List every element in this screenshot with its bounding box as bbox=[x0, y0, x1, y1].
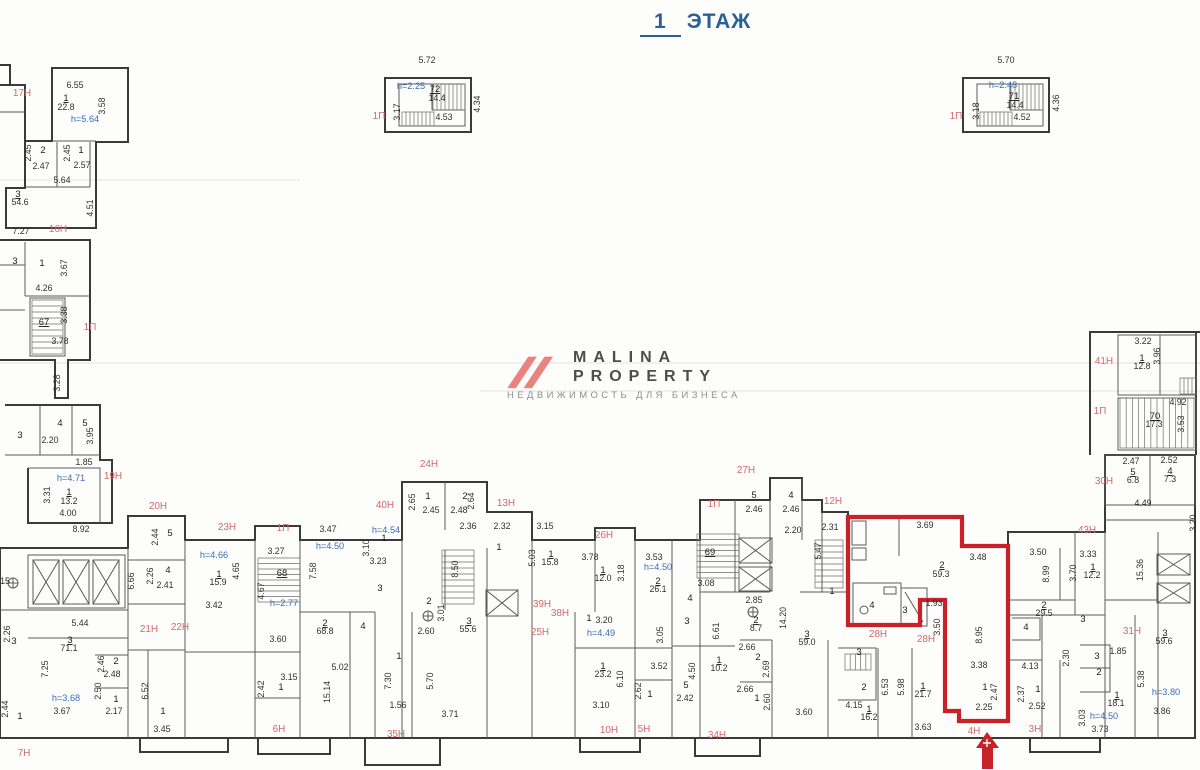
unit-number-label: 41Н bbox=[1095, 356, 1113, 367]
dimension-label: 6.53 bbox=[880, 678, 890, 695]
dimension-label: 8.99 bbox=[1041, 565, 1051, 582]
dimension-label: 2.47 bbox=[989, 683, 999, 700]
dimension-label: 3.50 bbox=[1029, 547, 1046, 557]
dimension-label: 1 bbox=[1035, 683, 1040, 694]
dimension-label: 3 bbox=[11, 635, 16, 646]
height-label: h=3.68 bbox=[52, 693, 80, 703]
unit-number-label: 23Н bbox=[218, 522, 236, 533]
logo-line1: MALINA bbox=[573, 348, 741, 367]
dimension-label: 2.47 bbox=[32, 161, 49, 171]
dimension-label: 3.95 bbox=[85, 427, 95, 444]
dimension-label: 3.10 bbox=[592, 700, 609, 710]
dimension-label: 3.45 bbox=[153, 724, 170, 734]
dimension-label: 4 bbox=[869, 599, 874, 610]
unit-number-label: 16Н bbox=[49, 224, 67, 235]
dimension-label: 21.7 bbox=[914, 689, 931, 699]
dimension-label: 4 bbox=[165, 564, 170, 575]
dimension-label: 22.8 bbox=[57, 102, 74, 112]
dimension-label: 3.47 bbox=[319, 524, 336, 534]
dimension-label: 3.86 bbox=[1153, 706, 1170, 716]
dimension-label: 3.50 bbox=[932, 618, 942, 635]
dimension-label: 2.36 bbox=[459, 521, 476, 531]
brand-logo: MALINA PROPERTY НЕДВИЖИМОСТЬ ДЛЯ БИЗНЕСА bbox=[505, 348, 741, 401]
dimension-label: 2 bbox=[40, 144, 45, 155]
unit-number-label: 25Н bbox=[531, 627, 549, 638]
dimension-label: 69 bbox=[705, 546, 715, 557]
elevator-shaft bbox=[739, 567, 772, 591]
dimension-label: 5.70 bbox=[997, 55, 1014, 65]
dimension-label: 3.73 bbox=[1091, 724, 1108, 734]
elevator-shaft bbox=[1157, 583, 1190, 603]
dimension-label: 8.7 bbox=[750, 623, 762, 633]
dimension-label: 8.50 bbox=[450, 560, 460, 577]
dimension-label: 16.2 bbox=[860, 712, 877, 722]
unit-number-label: 21Н bbox=[140, 624, 158, 635]
dimension-label: 3.71 bbox=[441, 709, 458, 719]
unit-number-label: 7Н bbox=[18, 748, 31, 759]
dimension-label: 2.45 bbox=[23, 144, 33, 161]
dimension-label: 2 bbox=[113, 655, 118, 666]
dimension-label: 2.47 bbox=[1122, 456, 1139, 466]
dimension-label: 4.50 bbox=[687, 662, 697, 679]
floorplan-page: 1ЭТАЖ bbox=[0, 0, 1200, 770]
unit-number-label: 31Н bbox=[1123, 626, 1141, 637]
plan-labels: 5.72h=2.257214.43.174.344.531П5.70h=2.48… bbox=[0, 55, 1198, 759]
dimension-label: 2 bbox=[426, 595, 431, 606]
dimension-label: 4.65 bbox=[231, 562, 241, 579]
dimension-label: 3 bbox=[1080, 613, 1085, 624]
elevator-shaft bbox=[739, 538, 772, 563]
dimension-label: 2.26 bbox=[145, 567, 155, 584]
dimension-label: 5.72 bbox=[418, 55, 435, 65]
dimension-label: 3.70 bbox=[1068, 564, 1078, 581]
dimension-label: 1.85 bbox=[75, 457, 92, 467]
unit-number-label: 34Н bbox=[708, 730, 726, 741]
dimension-label: 4.36 bbox=[1051, 94, 1061, 111]
dimension-label: 2.45 bbox=[422, 505, 439, 515]
dimension-label: 2 bbox=[755, 651, 760, 662]
logo-text: MALINA PROPERTY НЕДВИЖИМОСТЬ ДЛЯ БИЗНЕСА bbox=[573, 348, 741, 401]
dimension-label: 3.96 bbox=[1152, 347, 1162, 364]
dimension-label: 2.45 bbox=[62, 144, 72, 161]
height-label: h=4.49 bbox=[587, 628, 615, 638]
dimension-label: 5 bbox=[751, 489, 756, 500]
dimension-label: 4 bbox=[1023, 621, 1028, 632]
dimension-label: 1 bbox=[381, 532, 386, 543]
dimension-label: 3.05 bbox=[655, 626, 665, 643]
dimension-label: 4.92 bbox=[1169, 397, 1186, 407]
dimension-label: 29.5 bbox=[1035, 608, 1052, 618]
dimension-label: 3.15 bbox=[536, 521, 553, 531]
dimension-label: 15 bbox=[0, 576, 10, 586]
dimension-label: 2.42 bbox=[676, 693, 693, 703]
dimension-label: 2.66 bbox=[738, 642, 755, 652]
dimension-label: 1.56 bbox=[389, 700, 406, 710]
dimension-label: 2.65 bbox=[407, 493, 417, 510]
unit-number-label: 1П bbox=[1094, 406, 1107, 417]
unit-number-label: 3Н bbox=[1029, 724, 1042, 735]
dimension-label: 3.58 bbox=[97, 97, 107, 114]
elevator-shaft bbox=[33, 560, 59, 604]
dimension-label: 2 bbox=[861, 681, 866, 692]
unit-number-label: 39Н bbox=[533, 599, 551, 610]
dimension-label: 3.33 bbox=[1079, 549, 1096, 559]
dimension-label: 3.18 bbox=[971, 102, 981, 119]
stair-flight bbox=[697, 534, 739, 578]
dimension-label: 4 bbox=[788, 489, 793, 500]
dimension-label: 5.03 bbox=[527, 549, 537, 566]
dimension-label: 3.01 bbox=[436, 604, 446, 621]
height-label: h=2.48 bbox=[989, 80, 1017, 90]
dimension-label: 2.52 bbox=[1028, 701, 1045, 711]
dimension-label: 1 bbox=[39, 257, 44, 268]
unit-number-label: 1П bbox=[950, 111, 963, 122]
dimension-label: 2.62 bbox=[633, 682, 643, 699]
dimension-label: 3 bbox=[12, 255, 17, 266]
dimension-label: 3.63 bbox=[914, 722, 931, 732]
height-label: h=3.80 bbox=[1152, 687, 1180, 697]
dimension-label: 2.42 bbox=[256, 680, 266, 697]
dimension-label: 3 bbox=[377, 582, 382, 593]
dimension-label: 1 bbox=[425, 490, 430, 501]
dimension-label: 2.48 bbox=[103, 669, 120, 679]
dimension-label: 2.37 bbox=[1016, 685, 1026, 702]
unit-number-label: 38Н bbox=[551, 608, 569, 619]
dimension-label: 4.15 bbox=[845, 700, 862, 710]
dimension-label: 12.2 bbox=[1083, 570, 1100, 580]
dimension-label: 3.69 bbox=[916, 520, 933, 530]
height-label: h=4.50 bbox=[316, 541, 344, 551]
dimension-label: 5.38 bbox=[1136, 670, 1146, 687]
dimension-label: 23.2 bbox=[594, 669, 611, 679]
unit-number-label: 13Н bbox=[497, 498, 515, 509]
dimension-label: 2.46 bbox=[782, 504, 799, 514]
dimension-label: 1 bbox=[78, 144, 83, 155]
stair-flight bbox=[980, 112, 1012, 126]
dimension-label: 6.10 bbox=[615, 670, 625, 687]
dimension-label: 55.6 bbox=[459, 624, 476, 634]
dimension-label: 5.44 bbox=[71, 618, 88, 628]
dimension-label: 3.20 bbox=[1188, 514, 1198, 531]
unit-number-label: 17Н bbox=[13, 88, 31, 99]
dimension-label: 1 bbox=[160, 705, 165, 716]
dimension-label: 3.60 bbox=[795, 707, 812, 717]
unit-number-label: 27Н bbox=[737, 465, 755, 476]
dimension-label: 5 bbox=[683, 679, 688, 690]
dimension-label: 54.6 bbox=[11, 197, 28, 207]
elevator-shaft bbox=[63, 560, 89, 604]
dimension-label: 68.8 bbox=[316, 626, 333, 636]
dimension-label: 68 bbox=[277, 567, 287, 578]
dimension-label: 4.49 bbox=[1134, 498, 1151, 508]
dimension-label: 4.13 bbox=[1021, 661, 1038, 671]
dimension-label: 8.95 bbox=[974, 626, 984, 643]
dimension-label: 3.20 bbox=[595, 615, 612, 625]
unit-number-label: 35Н bbox=[387, 729, 405, 740]
height-label: h=5.64 bbox=[71, 114, 99, 124]
dimension-label: 3.53 bbox=[1176, 415, 1186, 432]
dimension-label: 1.85 bbox=[1109, 646, 1126, 656]
dimension-label: 2.31 bbox=[821, 522, 838, 532]
unit-number-label: 40Н bbox=[376, 500, 394, 511]
height-label: h=4.50 bbox=[644, 562, 672, 572]
dimension-label: 1 bbox=[647, 688, 652, 699]
dimension-label: 15.36 bbox=[1135, 559, 1145, 581]
dimension-label: 2.25 bbox=[975, 702, 992, 712]
dimension-label: 3.78 bbox=[51, 336, 68, 346]
dimension-label: 6.52 bbox=[140, 682, 150, 699]
unit-number-label: 28Н bbox=[869, 629, 887, 640]
dimension-label: 3.22 bbox=[1134, 336, 1151, 346]
dimension-label: 1 bbox=[496, 541, 501, 552]
dimension-label: 4.53 bbox=[435, 112, 452, 122]
unit-number-label: 1П bbox=[84, 322, 97, 333]
dimension-label: 3.67 bbox=[59, 259, 69, 276]
dimension-label: 13.2 bbox=[60, 496, 77, 506]
dimension-label: 15.9 bbox=[209, 577, 226, 587]
dimension-label: 6.55 bbox=[66, 80, 83, 90]
dimension-label: 2.44 bbox=[0, 700, 10, 717]
height-label: h=4.71 bbox=[57, 473, 85, 483]
dimension-label: 2 bbox=[1096, 666, 1101, 677]
dimension-label: 4.00 bbox=[59, 508, 76, 518]
dimension-label: 1 bbox=[829, 585, 834, 596]
dimension-label: 6.8 bbox=[1127, 475, 1139, 485]
dimension-label: 2.57 bbox=[73, 160, 90, 170]
dimension-label: 3 bbox=[684, 615, 689, 626]
dimension-label: 1 bbox=[396, 650, 401, 661]
dimension-label: 15.8 bbox=[541, 557, 558, 567]
dimension-label: 3.52 bbox=[650, 661, 667, 671]
dimension-label: 2.41 bbox=[156, 580, 173, 590]
unit-number-label: 10Н bbox=[600, 725, 618, 736]
unit-number-label: 22Н bbox=[171, 622, 189, 633]
dimension-label: 1 bbox=[278, 681, 283, 692]
dimension-label: 4.34 bbox=[472, 95, 482, 112]
dimension-label: 14.20 bbox=[778, 607, 788, 629]
dimension-label: 2.32 bbox=[493, 521, 510, 531]
stair-flight bbox=[402, 112, 434, 126]
dimension-label: 59.0 bbox=[798, 637, 815, 647]
dimension-label: 5.47 bbox=[813, 542, 823, 559]
dimension-label: 59.6 bbox=[1155, 636, 1172, 646]
dimension-label: 7.58 bbox=[308, 562, 318, 579]
dimension-label: 4.26 bbox=[35, 283, 52, 293]
dimension-label: 15.14 bbox=[322, 681, 332, 703]
height-label: h=2.25 bbox=[397, 81, 425, 91]
dimension-label: 14.4 bbox=[1006, 100, 1023, 110]
dimension-label: 3.42 bbox=[205, 600, 222, 610]
dimension-label: 3.38 bbox=[970, 660, 987, 670]
dimension-label: 71.1 bbox=[60, 643, 77, 653]
dimension-label: 8.92 bbox=[72, 524, 89, 534]
dimension-label: 3.48 bbox=[969, 552, 986, 562]
dimension-label: 3.38 bbox=[59, 306, 69, 323]
dimension-label: 3.53 bbox=[645, 552, 662, 562]
dimension-label: 5.64 bbox=[53, 175, 70, 185]
unit-number-label: 19Н bbox=[104, 471, 122, 482]
dimension-label: 5 bbox=[167, 527, 172, 538]
dimension-label: 12.8 bbox=[1133, 361, 1150, 371]
dimension-label: 17.3 bbox=[1145, 419, 1162, 429]
unit-number-label: 30Н bbox=[1095, 476, 1113, 487]
logo-tagline: НЕДВИЖИМОСТЬ ДЛЯ БИЗНЕСА bbox=[507, 390, 741, 401]
unit-number-label: 20Н bbox=[149, 501, 167, 512]
dimension-label: 3.23 bbox=[369, 556, 386, 566]
dimension-label: 2.48 bbox=[450, 505, 467, 515]
dimension-label: 14.4 bbox=[428, 93, 445, 103]
dimension-label: 5.02 bbox=[331, 662, 348, 672]
height-label: h=4.66 bbox=[200, 550, 228, 560]
interior-walls bbox=[0, 84, 1196, 738]
dimension-label: 3.03 bbox=[1077, 709, 1087, 726]
dimension-label: 1 bbox=[982, 681, 987, 692]
dimension-label: 1 bbox=[17, 710, 22, 721]
logo-mark-icon bbox=[505, 350, 563, 392]
unit-number-label: 43Н bbox=[1078, 525, 1096, 536]
dimension-label: 2.17 bbox=[105, 706, 122, 716]
unit-number-label: 1П bbox=[277, 523, 290, 534]
dimension-label: 7.30 bbox=[383, 672, 393, 689]
dimension-label: 26.1 bbox=[649, 584, 666, 594]
dimension-label: 1.93 bbox=[925, 598, 942, 608]
elevator-shaft bbox=[1157, 554, 1190, 575]
dimension-label: 2.20 bbox=[41, 435, 58, 445]
dimension-label: 3.08 bbox=[697, 578, 714, 588]
dimension-label: 59.3 bbox=[932, 569, 949, 579]
dimension-label: 2.66 bbox=[736, 684, 753, 694]
dimension-label: 3.31 bbox=[42, 486, 52, 503]
unit-number-label: 1П bbox=[373, 111, 386, 122]
dimension-label: 3.18 bbox=[616, 564, 626, 581]
dimension-label: 3 bbox=[856, 646, 861, 657]
dimension-label: 7.25 bbox=[40, 660, 50, 677]
dimension-label: 4.67 bbox=[256, 582, 266, 599]
dimension-label: 2.60 bbox=[762, 693, 772, 710]
dimension-label: 4.52 bbox=[1013, 112, 1030, 122]
dimension-label: 3.17 bbox=[392, 103, 402, 120]
unit-number-label: 24Н bbox=[420, 459, 438, 470]
dimension-label: 5.98 bbox=[896, 678, 906, 695]
dimension-label: 4 bbox=[57, 417, 62, 428]
dimension-label: 2.50 bbox=[93, 682, 103, 699]
elevator-shaft bbox=[93, 560, 119, 604]
elevator-shaft bbox=[486, 590, 518, 616]
dimension-label: 4.51 bbox=[85, 199, 95, 216]
dimension-label: 3 bbox=[902, 604, 907, 615]
dimension-label: 18.1 bbox=[1107, 698, 1124, 708]
unit-number-label: 5Н bbox=[638, 724, 651, 735]
dimension-label: 7.3 bbox=[1164, 474, 1176, 484]
dimension-label: 2.20 bbox=[784, 525, 801, 535]
dimension-label: 2.46 bbox=[745, 504, 762, 514]
dimension-label: 1 bbox=[113, 693, 118, 704]
dimension-label: 5 bbox=[82, 417, 87, 428]
height-label: h=2.77 bbox=[270, 598, 298, 608]
dimension-label: 5.70 bbox=[425, 672, 435, 689]
dimension-label: 6.66 bbox=[126, 572, 136, 589]
dimension-label: 2.85 bbox=[745, 595, 762, 605]
dimension-label: 6.61 bbox=[711, 622, 721, 639]
unit-number-label: 1П bbox=[708, 499, 721, 510]
logo-line2: PROPERTY bbox=[573, 367, 741, 386]
dimension-label: 67 bbox=[39, 316, 49, 327]
dimension-label: 3.67 bbox=[53, 706, 70, 716]
dimension-label: 3.10 bbox=[361, 539, 371, 556]
height-label: h=4.50 bbox=[1090, 711, 1118, 721]
dimension-label: 2.52 bbox=[1160, 455, 1177, 465]
dimension-label: 2.69 bbox=[761, 660, 771, 677]
dimension-label: 2.60 bbox=[417, 626, 434, 636]
dimension-label: 3.60 bbox=[269, 634, 286, 644]
dimension-label: 3 bbox=[17, 429, 22, 440]
dimension-label: 1 bbox=[754, 692, 759, 703]
dimension-label: 3.28 bbox=[52, 374, 62, 391]
dimension-label: 7.27 bbox=[12, 226, 29, 236]
unit-number-label: 4Н bbox=[968, 726, 981, 737]
dimension-label: 3.78 bbox=[581, 552, 598, 562]
unit-number-label: 26Н bbox=[595, 530, 613, 541]
dimension-label: 4 bbox=[687, 592, 692, 603]
dimension-label: 1 bbox=[586, 612, 591, 623]
dimension-label: 3.27 bbox=[267, 546, 284, 556]
dimension-label: 4 bbox=[360, 620, 365, 631]
dimension-label: 12.0 bbox=[594, 573, 611, 583]
unit-number-label: 6Н bbox=[273, 724, 286, 735]
dimension-label: 2.30 bbox=[1061, 649, 1071, 666]
dimension-label: 10.2 bbox=[710, 663, 727, 673]
dimension-label: 3 bbox=[1094, 650, 1099, 661]
unit-number-label: 12Н bbox=[824, 496, 842, 507]
dimension-label: 2.44 bbox=[150, 528, 160, 545]
